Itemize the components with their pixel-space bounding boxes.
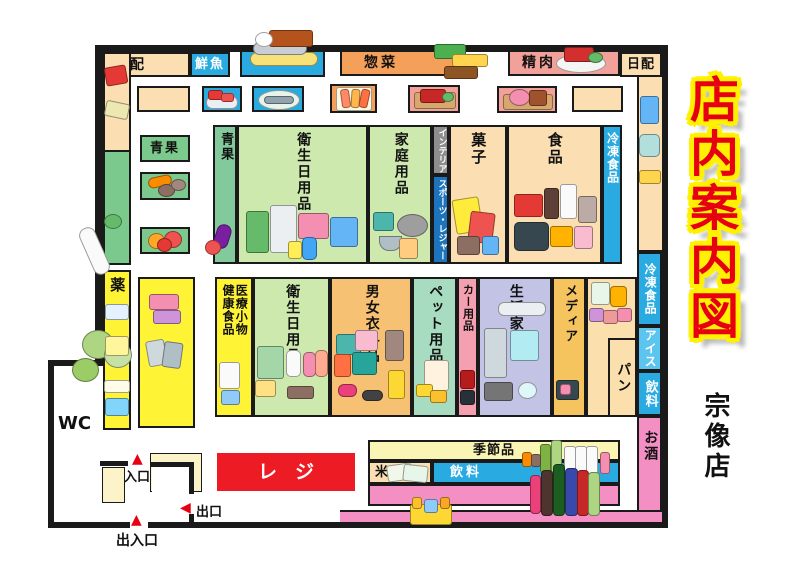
area-meat-dept: 精肉 xyxy=(508,50,620,76)
fixture-ham xyxy=(497,86,557,113)
wall-entrance-h xyxy=(150,462,194,467)
area-seafood-case xyxy=(240,50,325,77)
exit-arrow-icon: ◀ xyxy=(180,501,191,515)
right-col-alcohol: お酒 xyxy=(637,416,662,522)
area-medical-health: 医療小物 健康食品 xyxy=(215,277,253,417)
wall-bottom-left xyxy=(48,522,130,528)
area-produce-strip: 青果 xyxy=(213,125,237,264)
left-strip-produce xyxy=(103,150,131,265)
wall-entrance-v1 xyxy=(189,462,194,494)
pet-label: ペット用品 xyxy=(427,284,442,364)
area-household-goods: 家庭用品 xyxy=(368,125,432,264)
area-rice: 米 xyxy=(368,461,432,484)
alcohol-label: お酒 xyxy=(642,430,657,462)
area-frozen-strip: 冷凍食品 xyxy=(602,125,622,264)
medicine-label: 薬 xyxy=(109,277,126,294)
fixture-sashimi xyxy=(202,86,242,112)
frozen-strip-label: 冷凍食品 xyxy=(605,132,618,184)
bread-label: パン xyxy=(615,362,630,394)
area-hygiene-goods-1: 衛生日用品 xyxy=(237,125,368,264)
area-seasonal: 季節品 xyxy=(368,440,620,461)
wall-left-lower xyxy=(48,360,54,528)
wall-jog xyxy=(48,360,103,366)
meat-label: 精肉 xyxy=(522,56,556,70)
store-name: 宗像店 xyxy=(702,392,728,486)
main-entrance-arrow-icon: ▲ xyxy=(131,513,142,527)
store-name-text: 宗像店 xyxy=(702,392,728,482)
area-sports-leisure: スポーツ・レジャー xyxy=(432,175,449,264)
area-dairy-right-strip xyxy=(637,52,662,252)
main-entrance-label: 出入口 xyxy=(116,530,158,550)
area-alcohol-shelf xyxy=(368,484,620,506)
right-col-frozen: 冷凍食品 xyxy=(637,252,662,326)
left-strip-dairy xyxy=(103,52,131,152)
entrance-fixture-2 xyxy=(102,467,125,503)
produce-box-label: 青果 xyxy=(150,142,180,155)
household-label: 家庭用品 xyxy=(392,132,407,196)
area-food: 食品 xyxy=(507,125,602,264)
entrance-arrow-icon: ▲ xyxy=(132,452,143,466)
hygiene1-label: 衛生日用品 xyxy=(295,132,310,212)
area-fresh-fish: 鮮魚 xyxy=(190,52,230,77)
entrance-vestibule xyxy=(152,467,189,492)
produce-label-box: 青果 xyxy=(140,135,190,162)
media-label: メディア xyxy=(562,284,576,344)
wall-right xyxy=(661,45,668,528)
poster-title-text: 店内案内図 xyxy=(686,74,735,344)
rice-label: 米 xyxy=(375,466,388,479)
wall-left-upper xyxy=(95,45,103,366)
area-clothing: 男女衣料品 xyxy=(330,277,412,417)
produce-strip-label: 青果 xyxy=(218,132,232,162)
area-dairy-top-right: 日配 xyxy=(620,52,662,77)
car-label: カー用品 xyxy=(461,284,473,332)
store-map-poster: 日配 鮮魚 惣菜 精肉 日配 薬 青果 青果 衛生日用品 家庭用品 インテリア xyxy=(0,0,800,577)
produce-box-fruit xyxy=(140,227,190,254)
seasonal-label: 季節品 xyxy=(473,444,515,457)
area-deli: 惣菜 xyxy=(340,50,462,76)
area-supplement-shelf xyxy=(138,277,195,428)
fixture-empty-1 xyxy=(137,86,190,112)
area-appliances: 生活家電 xyxy=(478,277,552,417)
area-pet-goods: ペット用品 xyxy=(412,277,457,417)
register: レジ xyxy=(217,453,355,491)
dairy-right-label: 日配 xyxy=(627,58,655,71)
fixture-tempura xyxy=(330,84,377,113)
beverage-bottom-label: 飲料 xyxy=(450,466,482,479)
sports-leisure-label: スポーツ・レジャー xyxy=(436,179,446,260)
fresh-fish-label: 鮮魚 xyxy=(195,58,225,71)
appliances-label: 生活家電 xyxy=(507,284,522,348)
area-bread-label-box: パン xyxy=(608,338,637,417)
area-alcohol-bottom-strip xyxy=(340,510,662,522)
right-beverage-label: 飲料 xyxy=(642,380,656,408)
exit-label: 出口 xyxy=(196,501,222,520)
register-label: レジ xyxy=(240,463,332,482)
health-food-label: 健康食品 xyxy=(221,284,234,336)
area-media: メディア xyxy=(552,277,586,417)
toilet-label: WC xyxy=(58,413,91,434)
left-strip-medicine: 薬 xyxy=(103,270,131,430)
wall-bottom-main xyxy=(148,522,668,528)
fixture-empty-2 xyxy=(572,86,623,112)
interior-label: インテリア xyxy=(436,128,446,173)
sweets-label: 菓子 xyxy=(470,132,487,166)
clothing-label: 男女衣料品 xyxy=(363,284,378,364)
fixture-fish-plate xyxy=(252,86,304,112)
area-interior: インテリア xyxy=(432,125,449,175)
area-hygiene-goods-2: 衛生日用品 xyxy=(253,277,330,417)
food-label: 食品 xyxy=(546,132,563,166)
fixture-raw-meat xyxy=(408,85,460,113)
right-col-beverage: 飲料 xyxy=(637,371,662,416)
area-sweets: 菓子 xyxy=(449,125,507,264)
right-frozen-label: 冷凍食品 xyxy=(643,263,656,315)
entrance-label: 入口 xyxy=(124,466,150,485)
area-car-goods: カー用品 xyxy=(457,277,478,417)
poster-title: 店内案内図 xyxy=(686,74,766,374)
deli-label: 惣菜 xyxy=(364,56,398,70)
produce-box-vegetables xyxy=(140,172,190,200)
area-beverage-bottom: 飲料 xyxy=(432,461,620,484)
medical-goods-label: 医療小物 xyxy=(234,284,247,336)
right-col-ice-cream: アイス xyxy=(637,326,662,371)
hygiene2-label: 衛生日用品 xyxy=(284,284,299,364)
ice-cream-label: アイス xyxy=(643,329,656,368)
